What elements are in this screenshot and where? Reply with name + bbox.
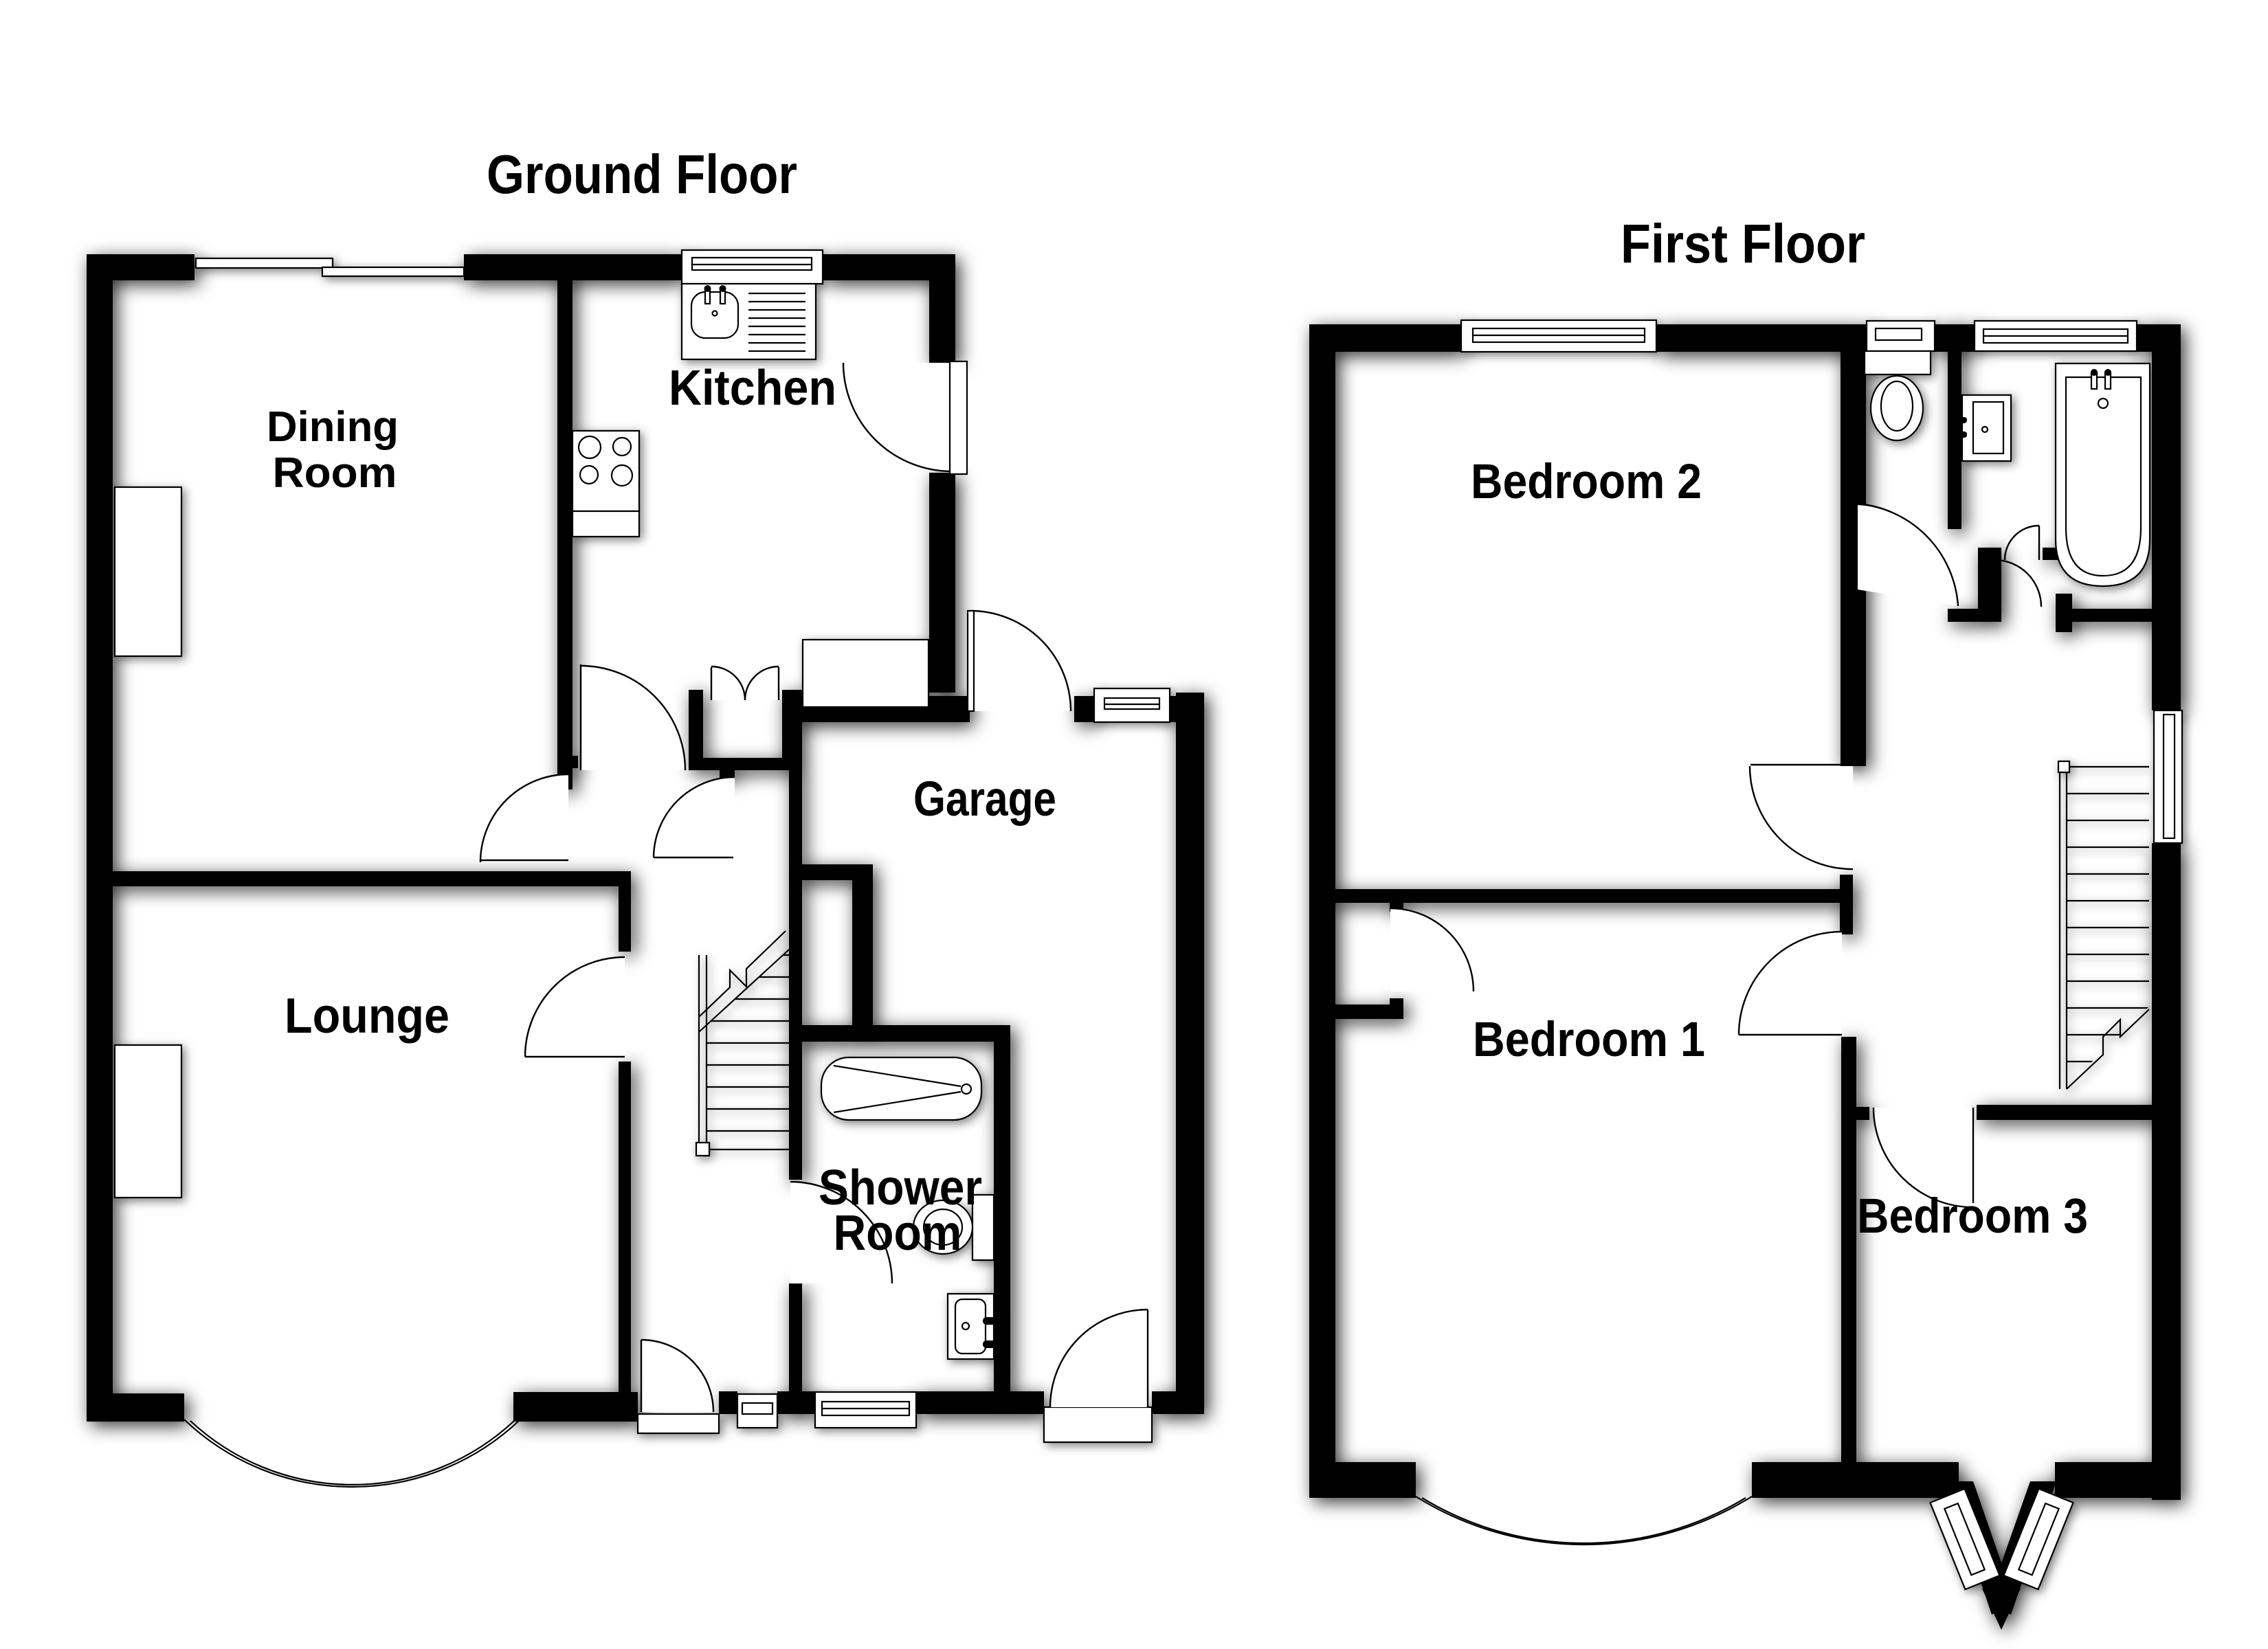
svg-text:Dining: Dining <box>267 403 399 451</box>
svg-text:First Floor: First Floor <box>1621 213 1865 274</box>
svg-text:Kitchen: Kitchen <box>669 361 836 416</box>
svg-text:Bedroom 2: Bedroom 2 <box>1471 455 1702 509</box>
svg-text:Ground Floor: Ground Floor <box>487 144 797 205</box>
svg-text:Bedroom 1: Bedroom 1 <box>1473 1013 1705 1067</box>
svg-text:Room: Room <box>834 1206 962 1261</box>
svg-text:Bedroom 3: Bedroom 3 <box>1857 1189 2088 1244</box>
svg-text:Lounge: Lounge <box>285 989 449 1044</box>
svg-text:Garage: Garage <box>913 772 1056 827</box>
svg-text:Room: Room <box>273 449 397 497</box>
